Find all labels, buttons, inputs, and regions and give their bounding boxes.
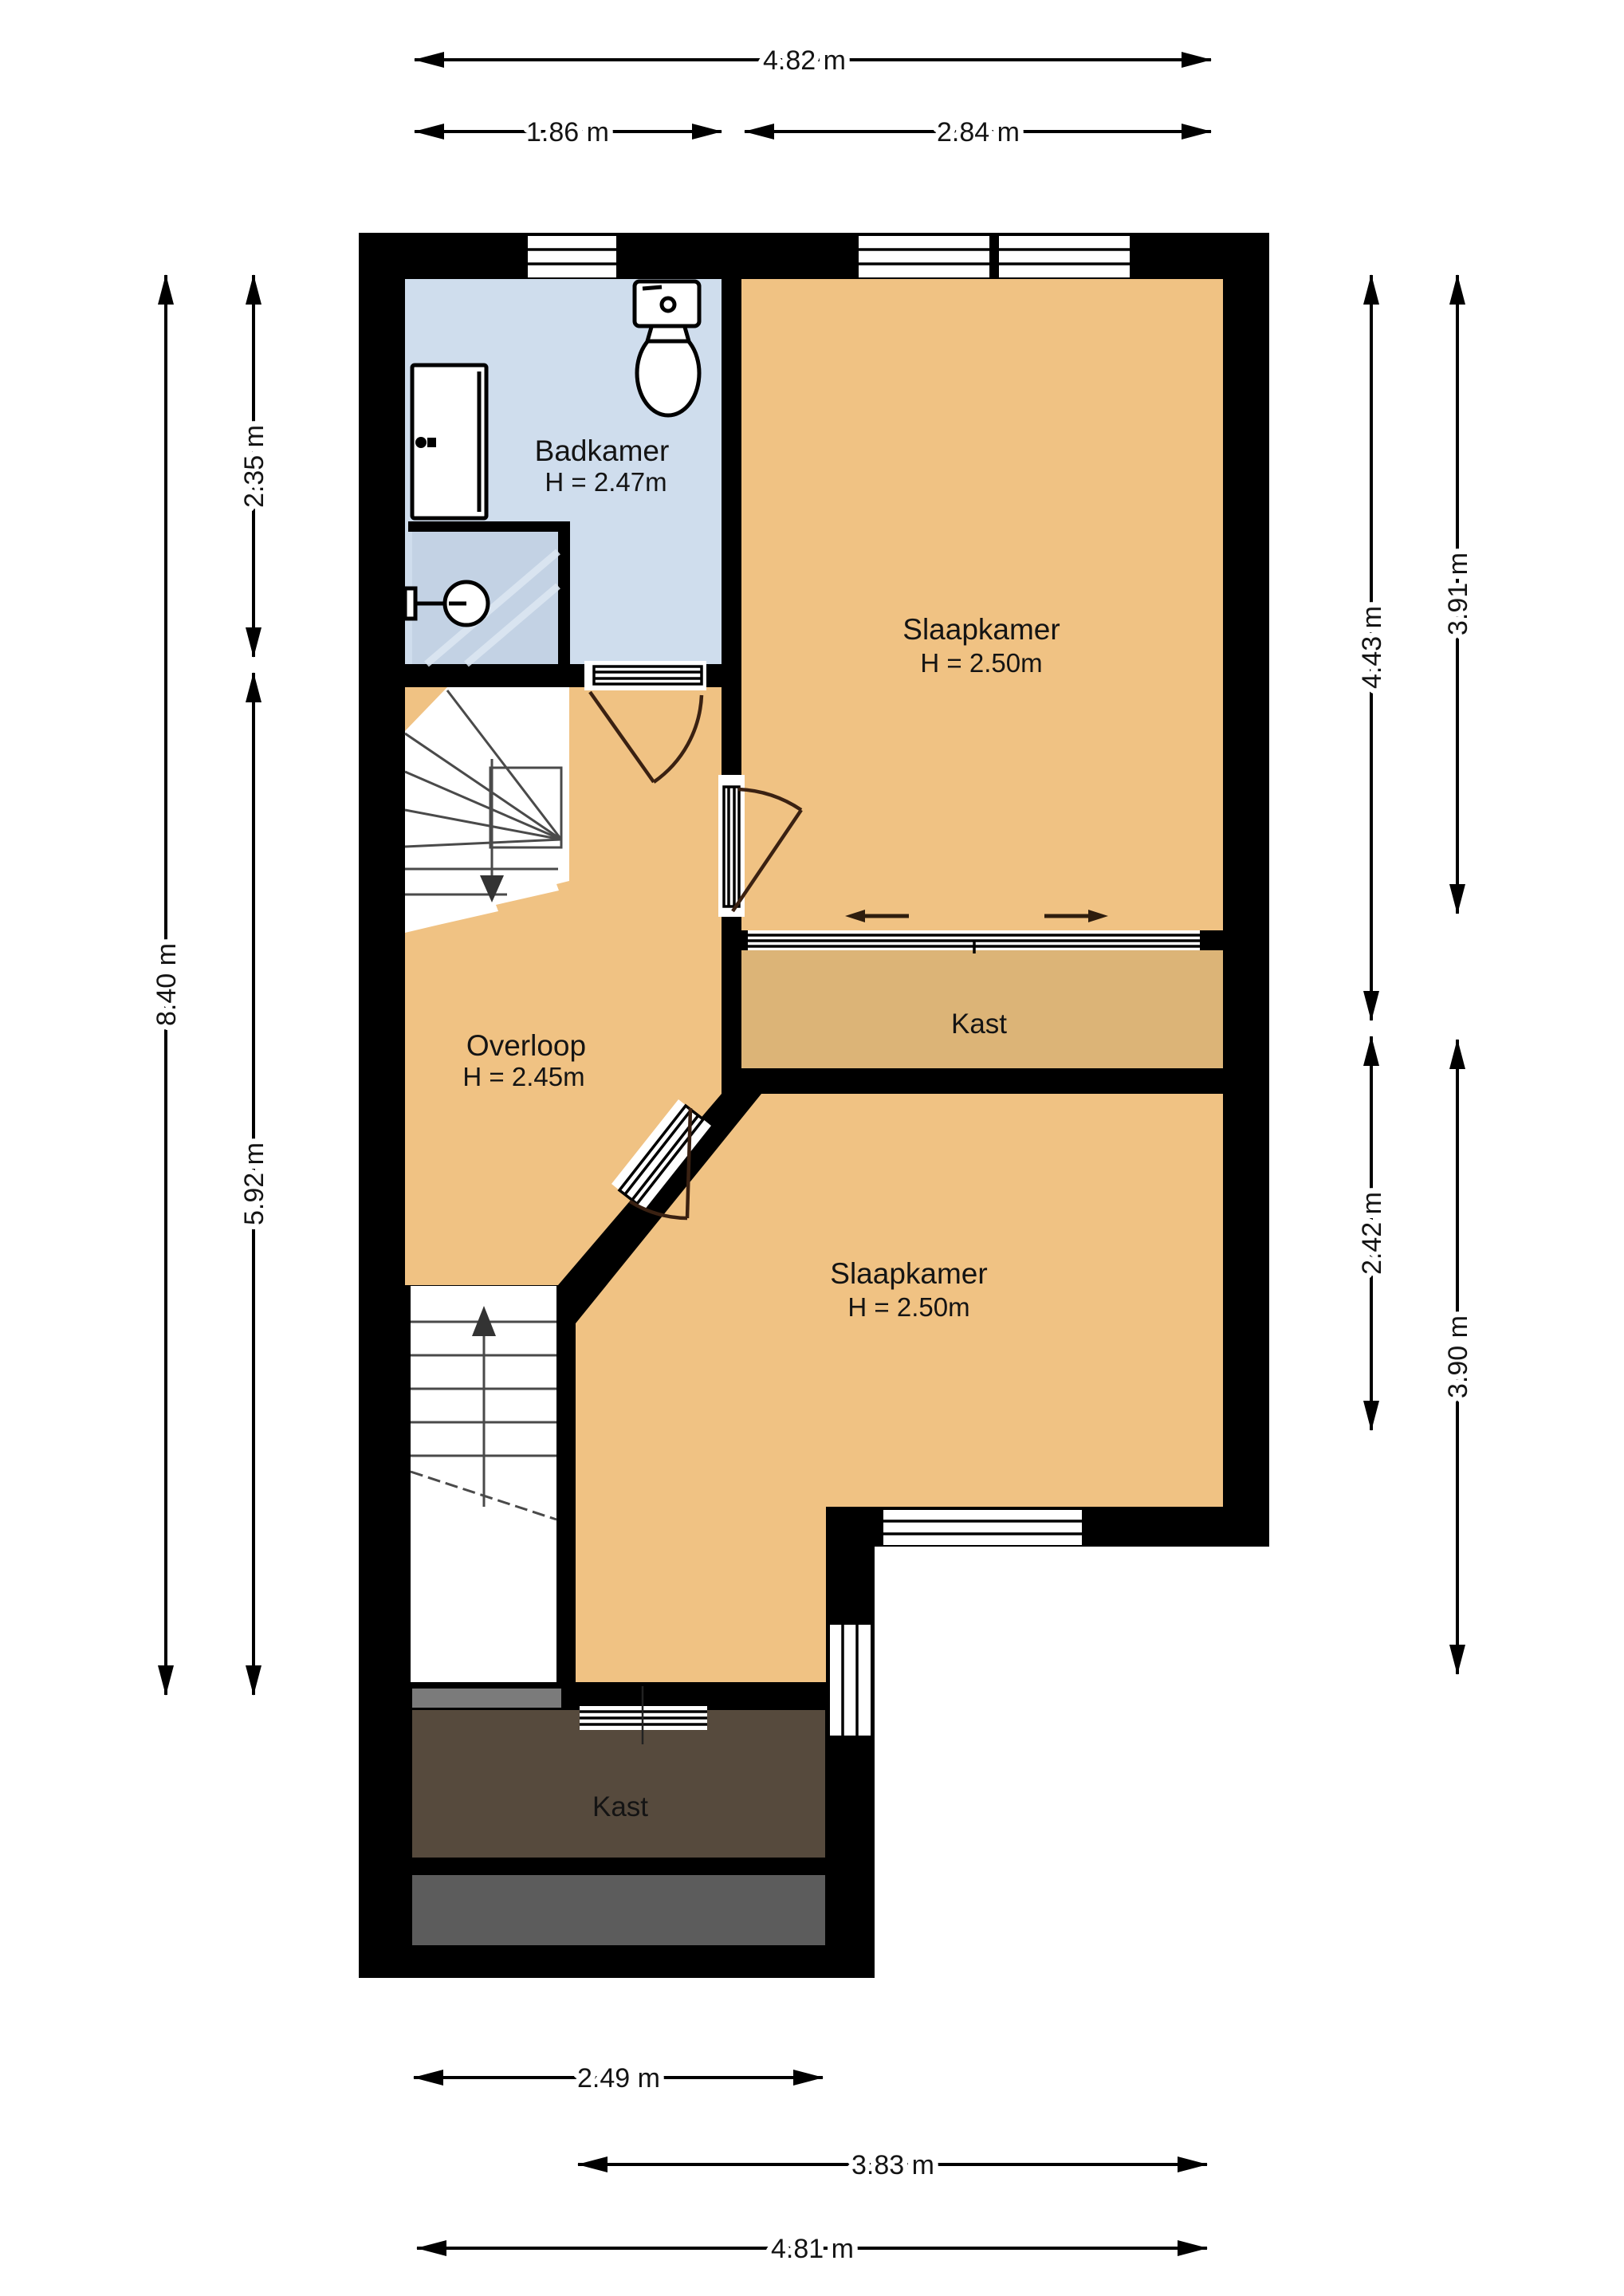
- svg-text:4.43 m: 4.43 m: [1357, 606, 1387, 689]
- label-badkamer: Badkamer: [535, 434, 670, 467]
- label-kast-bottom: Kast: [592, 1791, 648, 1822]
- svg-text:2.35 m: 2.35 m: [239, 425, 269, 508]
- label-kast-middle: Kast: [951, 1008, 1007, 1040]
- window-badkamer-top: [528, 236, 616, 277]
- svg-text:2.49 m: 2.49 m: [577, 2063, 660, 2094]
- sink: [412, 365, 486, 518]
- dimension-top-right: 2.84 m: [745, 117, 1211, 147]
- label-slaapkamer-top-height: H = 2.50m: [920, 648, 1042, 678]
- svg-text:8.40 m: 8.40 m: [151, 943, 182, 1026]
- svg-text:3.91 m: 3.91 m: [1443, 552, 1473, 635]
- svg-text:3.83 m: 3.83 m: [851, 2150, 934, 2180]
- dimension-bottom-right: 3.83 m: [578, 2150, 1207, 2180]
- dimension-right-inner-top: 4.43 m: [1357, 275, 1387, 1020]
- room-slaapkamer-top-floor: [741, 279, 1223, 930]
- dimension-left-overall: 8.40 m: [151, 275, 182, 1695]
- svg-text:5.92 m: 5.92 m: [239, 1142, 269, 1225]
- dimension-top-overall: 4.82 m: [415, 45, 1211, 76]
- svg-text:4.82 m: 4.82 m: [763, 45, 846, 76]
- label-badkamer-height: H = 2.47m: [545, 467, 667, 497]
- dimension-left-lower: 5.92 m: [239, 673, 269, 1695]
- dimension-left-badkamer: 2.35 m: [239, 275, 269, 657]
- floor-plan-page: Badkamer H = 2.47m Slaapkamer H = 2.50m …: [0, 0, 1624, 2296]
- window-side-recess: [830, 1625, 871, 1736]
- svg-text:4.81 m: 4.81 m: [771, 2234, 854, 2264]
- room-kast-bottom-floor: [412, 1710, 825, 1858]
- dimension-right-outer-top: 3.91 m: [1443, 275, 1473, 914]
- window-slaapkamer-top: [859, 236, 1130, 277]
- toilet: [635, 281, 699, 415]
- svg-text:3.90 m: 3.90 m: [1443, 1315, 1473, 1398]
- svg-text:2.42 m: 2.42 m: [1357, 1192, 1387, 1275]
- svg-text:2.84 m: 2.84 m: [937, 117, 1020, 147]
- svg-text:1.86 m: 1.86 m: [526, 117, 609, 147]
- floor-plan-canvas: Badkamer H = 2.47m Slaapkamer H = 2.50m …: [0, 0, 1624, 2296]
- dimension-right-outer-bottom: 3.90 m: [1443, 1040, 1473, 1674]
- window-slaapkamer-bottom: [883, 1510, 1082, 1545]
- staircase-lower: [411, 1286, 556, 1682]
- dimension-top-left: 1.86 m: [415, 117, 722, 147]
- label-slaapkamer-bottom: Slaapkamer: [830, 1257, 987, 1290]
- void-gray-band: [412, 1875, 825, 1945]
- label-slaapkamer-top: Slaapkamer: [902, 613, 1060, 646]
- label-slaapkamer-bottom-height: H = 2.50m: [847, 1292, 969, 1322]
- dimension-right-inner-bottom: 2.42 m: [1357, 1036, 1387, 1430]
- label-overloop-height: H = 2.45m: [462, 1062, 584, 1091]
- dimension-bottom-left: 2.49 m: [414, 2063, 823, 2094]
- label-overloop: Overloop: [466, 1029, 586, 1062]
- dimension-bottom-overall: 4.81 m: [417, 2234, 1207, 2264]
- shower: [405, 521, 570, 664]
